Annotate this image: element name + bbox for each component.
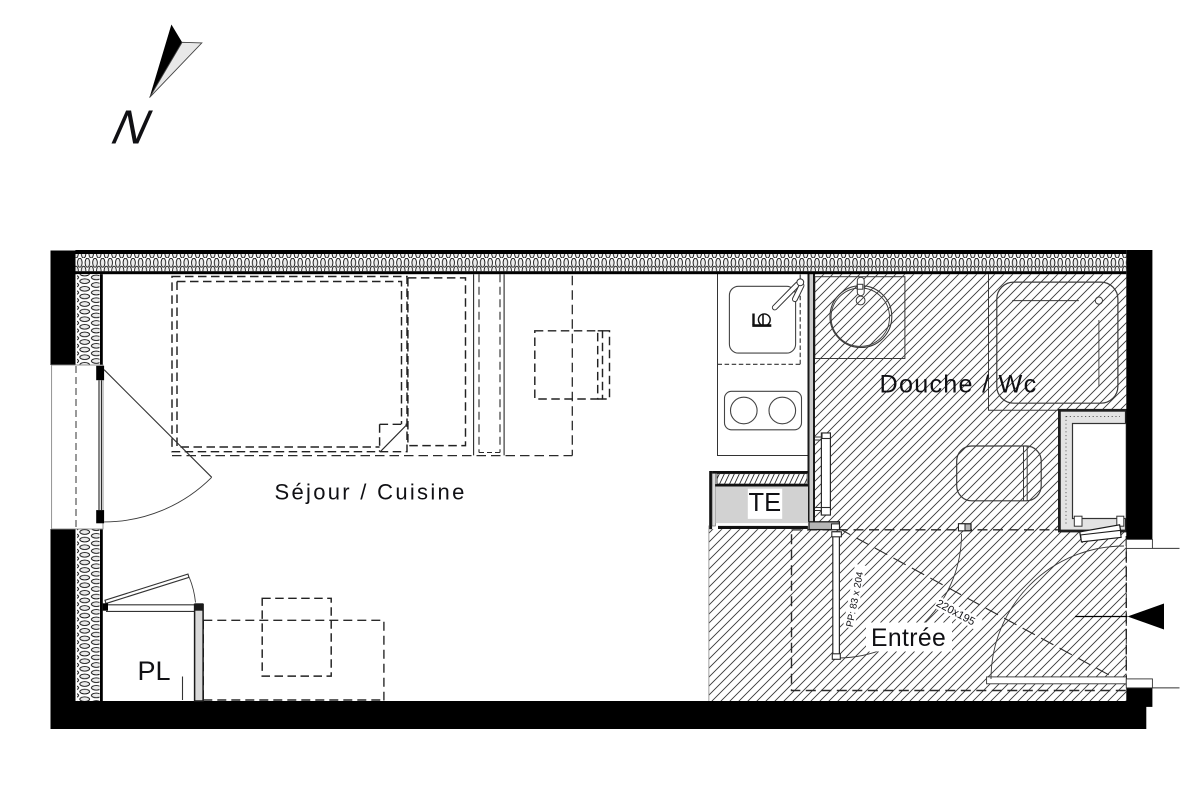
svg-text:Séjour / Cuisine: Séjour / Cuisine xyxy=(275,480,467,505)
svg-text:Entrée: Entrée xyxy=(871,625,946,652)
svg-text:Douche / Wc: Douche / Wc xyxy=(880,371,1038,399)
svg-text:TE: TE xyxy=(749,489,782,517)
svg-text:PL: PL xyxy=(138,656,171,686)
